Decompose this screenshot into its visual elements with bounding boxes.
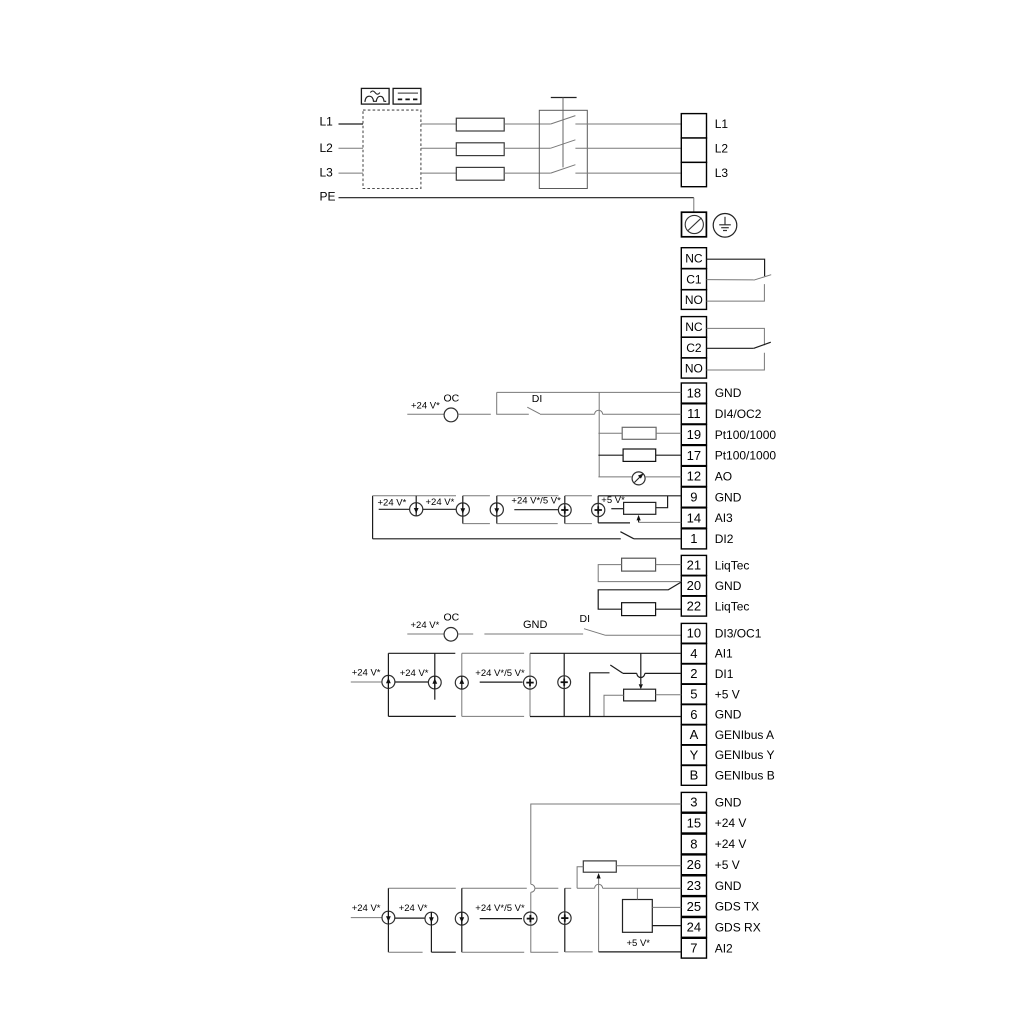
svg-text:6: 6	[690, 707, 697, 722]
svg-text:GDS TX: GDS TX	[715, 900, 759, 914]
svg-text:9: 9	[690, 490, 697, 505]
svg-text:GND: GND	[715, 879, 742, 893]
svg-text:OC: OC	[444, 393, 460, 405]
svg-text:+24 V*: +24 V*	[378, 498, 407, 509]
svg-text:L2: L2	[715, 142, 729, 156]
svg-text:+24 V*: +24 V*	[352, 667, 381, 678]
svg-text:+5 V: +5 V	[715, 687, 740, 701]
svg-text:DI: DI	[532, 393, 543, 405]
svg-text:Pt100/1000: Pt100/1000	[715, 449, 777, 463]
svg-text:L1: L1	[715, 117, 729, 131]
svg-text:DI4/OC2: DI4/OC2	[715, 407, 762, 421]
svg-text:19: 19	[687, 427, 701, 442]
svg-text:+24 V: +24 V	[715, 837, 747, 851]
svg-text:+24 V*: +24 V*	[411, 620, 440, 631]
svg-text:GND: GND	[523, 619, 548, 631]
svg-text:DI2: DI2	[715, 532, 734, 546]
svg-text:NO: NO	[685, 361, 703, 375]
svg-text:7: 7	[690, 941, 697, 956]
svg-text:Pt100/1000: Pt100/1000	[715, 428, 777, 442]
svg-text:L3: L3	[320, 165, 334, 179]
svg-text:+24 V*: +24 V*	[399, 903, 428, 914]
svg-text:23: 23	[687, 878, 701, 893]
svg-text:L3: L3	[715, 166, 729, 180]
svg-text:8: 8	[690, 836, 697, 851]
svg-text:+24 V*: +24 V*	[411, 400, 440, 411]
svg-text:GND: GND	[715, 795, 742, 809]
svg-text:Y: Y	[690, 747, 699, 762]
svg-text:GENIbus B: GENIbus B	[715, 769, 775, 783]
svg-text:11: 11	[687, 406, 701, 421]
svg-text:GND: GND	[715, 386, 742, 400]
svg-text:+24 V: +24 V	[715, 816, 747, 830]
svg-text:+24 V*: +24 V*	[426, 497, 455, 508]
svg-text:17: 17	[687, 448, 701, 463]
svg-text:LiqTec: LiqTec	[715, 599, 750, 613]
svg-text:22: 22	[687, 599, 701, 614]
svg-text:+5 V*: +5 V*	[601, 495, 625, 506]
svg-text:DI: DI	[580, 613, 591, 625]
svg-text:AI3: AI3	[715, 511, 733, 525]
svg-text:1: 1	[690, 531, 697, 546]
svg-text:+5 V: +5 V	[715, 858, 740, 872]
svg-text:+24 V*: +24 V*	[400, 668, 429, 679]
svg-text:18: 18	[687, 385, 701, 400]
svg-text:GND: GND	[715, 490, 742, 504]
svg-text:2: 2	[690, 666, 697, 681]
svg-text:GND: GND	[715, 579, 742, 593]
svg-text:4: 4	[690, 646, 697, 661]
svg-text:AI2: AI2	[715, 941, 733, 955]
svg-text:3: 3	[690, 795, 697, 810]
svg-text:25: 25	[687, 899, 701, 914]
svg-text:DI1: DI1	[715, 667, 734, 681]
svg-text:AO: AO	[715, 470, 732, 484]
svg-text:LiqTec: LiqTec	[715, 559, 750, 573]
svg-text:OC: OC	[444, 612, 460, 624]
svg-text:+24 V*/5 V*: +24 V*/5 V*	[475, 903, 525, 914]
svg-text:NO: NO	[685, 293, 703, 307]
svg-text:10: 10	[687, 626, 701, 641]
svg-text:+24 V*: +24 V*	[352, 903, 381, 914]
svg-text:A: A	[690, 727, 699, 742]
svg-text:AI1: AI1	[715, 647, 733, 661]
svg-text:21: 21	[687, 558, 701, 573]
svg-text:5: 5	[690, 687, 697, 702]
svg-text:12: 12	[687, 469, 701, 484]
svg-text:GND: GND	[715, 708, 742, 722]
svg-text:+24 V*/5 V*: +24 V*/5 V*	[475, 668, 525, 679]
svg-text:GENIbus Y: GENIbus Y	[715, 748, 775, 762]
svg-text:GENIbus A: GENIbus A	[715, 728, 774, 742]
svg-text:C2: C2	[686, 341, 702, 355]
svg-text:14: 14	[687, 510, 701, 525]
svg-text:+24 V*/5 V*: +24 V*/5 V*	[511, 495, 561, 506]
svg-text:DI3/OC1: DI3/OC1	[715, 626, 762, 640]
svg-text:15: 15	[687, 815, 701, 830]
svg-text:20: 20	[687, 578, 701, 593]
svg-text:+5 V*: +5 V*	[627, 938, 651, 949]
svg-text:GDS RX: GDS RX	[715, 921, 761, 935]
svg-text:PE: PE	[320, 189, 336, 203]
svg-text:NC: NC	[685, 320, 703, 334]
svg-text:C1: C1	[686, 273, 702, 287]
svg-text:L2: L2	[320, 141, 334, 155]
svg-text:L1: L1	[320, 115, 334, 129]
svg-text:NC: NC	[685, 251, 703, 265]
svg-text:24: 24	[687, 920, 701, 935]
svg-text:26: 26	[687, 857, 701, 872]
svg-text:B: B	[690, 768, 699, 783]
